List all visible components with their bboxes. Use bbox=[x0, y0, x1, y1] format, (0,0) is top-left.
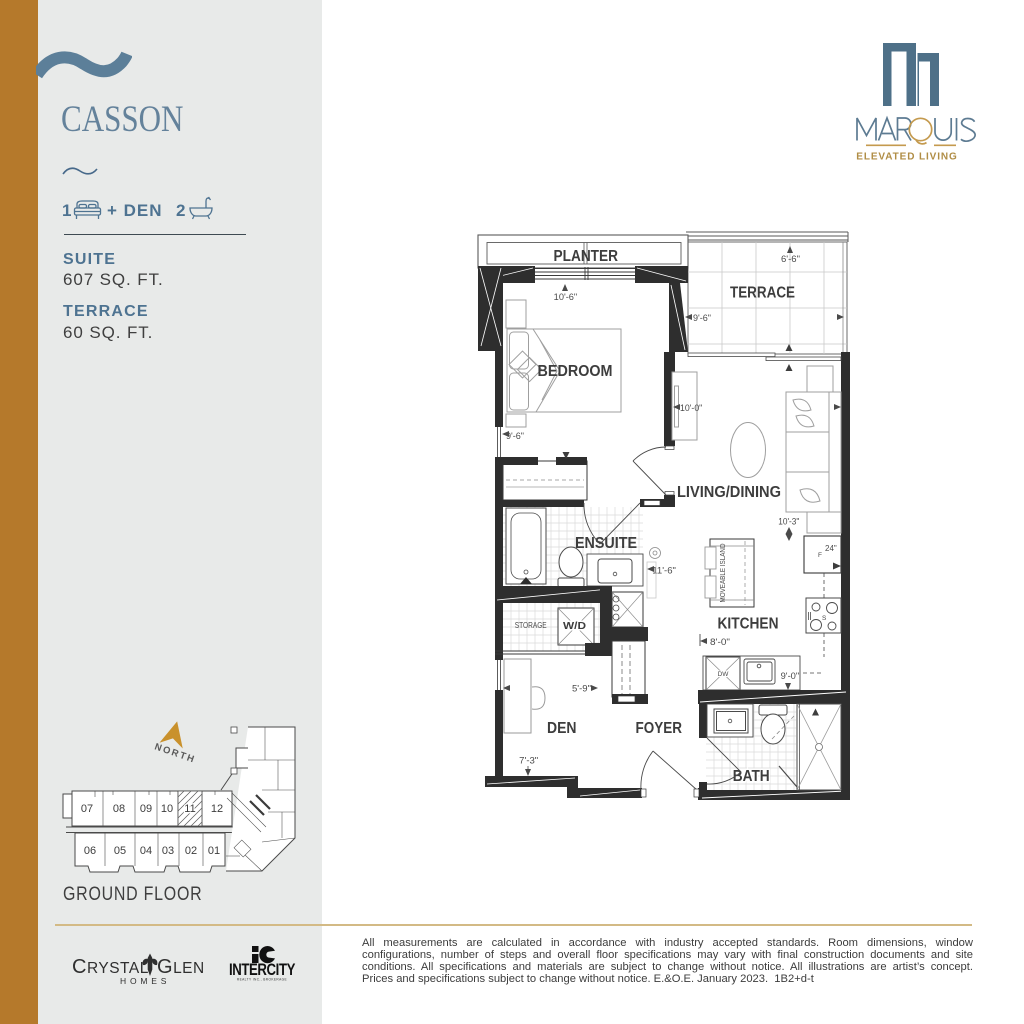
svg-text:8'-0": 8'-0" bbox=[710, 637, 730, 647]
svg-text:ELEVATED LIVING: ELEVATED LIVING bbox=[856, 152, 957, 163]
svg-text:05: 05 bbox=[114, 845, 126, 857]
svg-text:BATH: BATH bbox=[733, 768, 770, 785]
svg-text:DW: DW bbox=[718, 671, 730, 678]
svg-text:08: 08 bbox=[113, 803, 125, 815]
svg-text:02: 02 bbox=[185, 845, 197, 857]
svg-text:LIVING/DINING: LIVING/DINING bbox=[677, 484, 781, 501]
svg-text:03: 03 bbox=[162, 845, 174, 857]
svg-text:W/D: W/D bbox=[563, 621, 586, 632]
svg-text:MOVEABLE ISLAND: MOVEABLE ISLAND bbox=[718, 543, 727, 602]
svg-text:6'-6": 6'-6" bbox=[781, 254, 800, 264]
svg-text:STORAGE: STORAGE bbox=[515, 620, 547, 630]
svg-text:INTERCITY: INTERCITY bbox=[229, 961, 295, 979]
svg-text:DEN: DEN bbox=[547, 720, 577, 737]
svg-text:10: 10 bbox=[161, 803, 173, 815]
svg-text:GLEN: GLEN bbox=[157, 956, 205, 978]
svg-text:PLANTER: PLANTER bbox=[554, 248, 619, 265]
svg-text:CRYSTAL: CRYSTAL bbox=[72, 956, 149, 978]
svg-text:NORTH: NORTH bbox=[153, 741, 197, 765]
svg-text:10'-6": 10'-6" bbox=[554, 292, 578, 302]
svg-text:9'-0": 9'-0" bbox=[781, 671, 800, 681]
svg-text:07: 07 bbox=[81, 803, 93, 815]
svg-text:11: 11 bbox=[184, 803, 195, 815]
svg-text:5'-9": 5'-9" bbox=[572, 684, 591, 694]
svg-text:KITCHEN: KITCHEN bbox=[718, 616, 779, 633]
svg-text:06: 06 bbox=[84, 845, 96, 857]
svg-text:10'-0": 10'-0" bbox=[680, 403, 702, 413]
svg-text:01: 01 bbox=[208, 845, 220, 857]
svg-text:24": 24" bbox=[825, 544, 837, 553]
svg-text:BEDROOM: BEDROOM bbox=[538, 363, 613, 380]
svg-text:F: F bbox=[818, 552, 822, 559]
svg-text:10'-3": 10'-3" bbox=[778, 517, 799, 527]
svg-text:09: 09 bbox=[140, 803, 152, 815]
svg-text:REALTY INC., BROKERAGE: REALTY INC., BROKERAGE bbox=[237, 978, 287, 982]
svg-text:TERRACE: TERRACE bbox=[730, 285, 795, 302]
svg-text:7'-3": 7'-3" bbox=[519, 756, 538, 766]
svg-text:HOMES: HOMES bbox=[120, 976, 170, 986]
svg-text:S: S bbox=[822, 615, 827, 622]
svg-text:9'-6": 9'-6" bbox=[693, 313, 711, 323]
svg-text:12: 12 bbox=[211, 803, 223, 815]
svg-text:FOYER: FOYER bbox=[636, 720, 683, 737]
svg-text:04: 04 bbox=[140, 845, 152, 857]
